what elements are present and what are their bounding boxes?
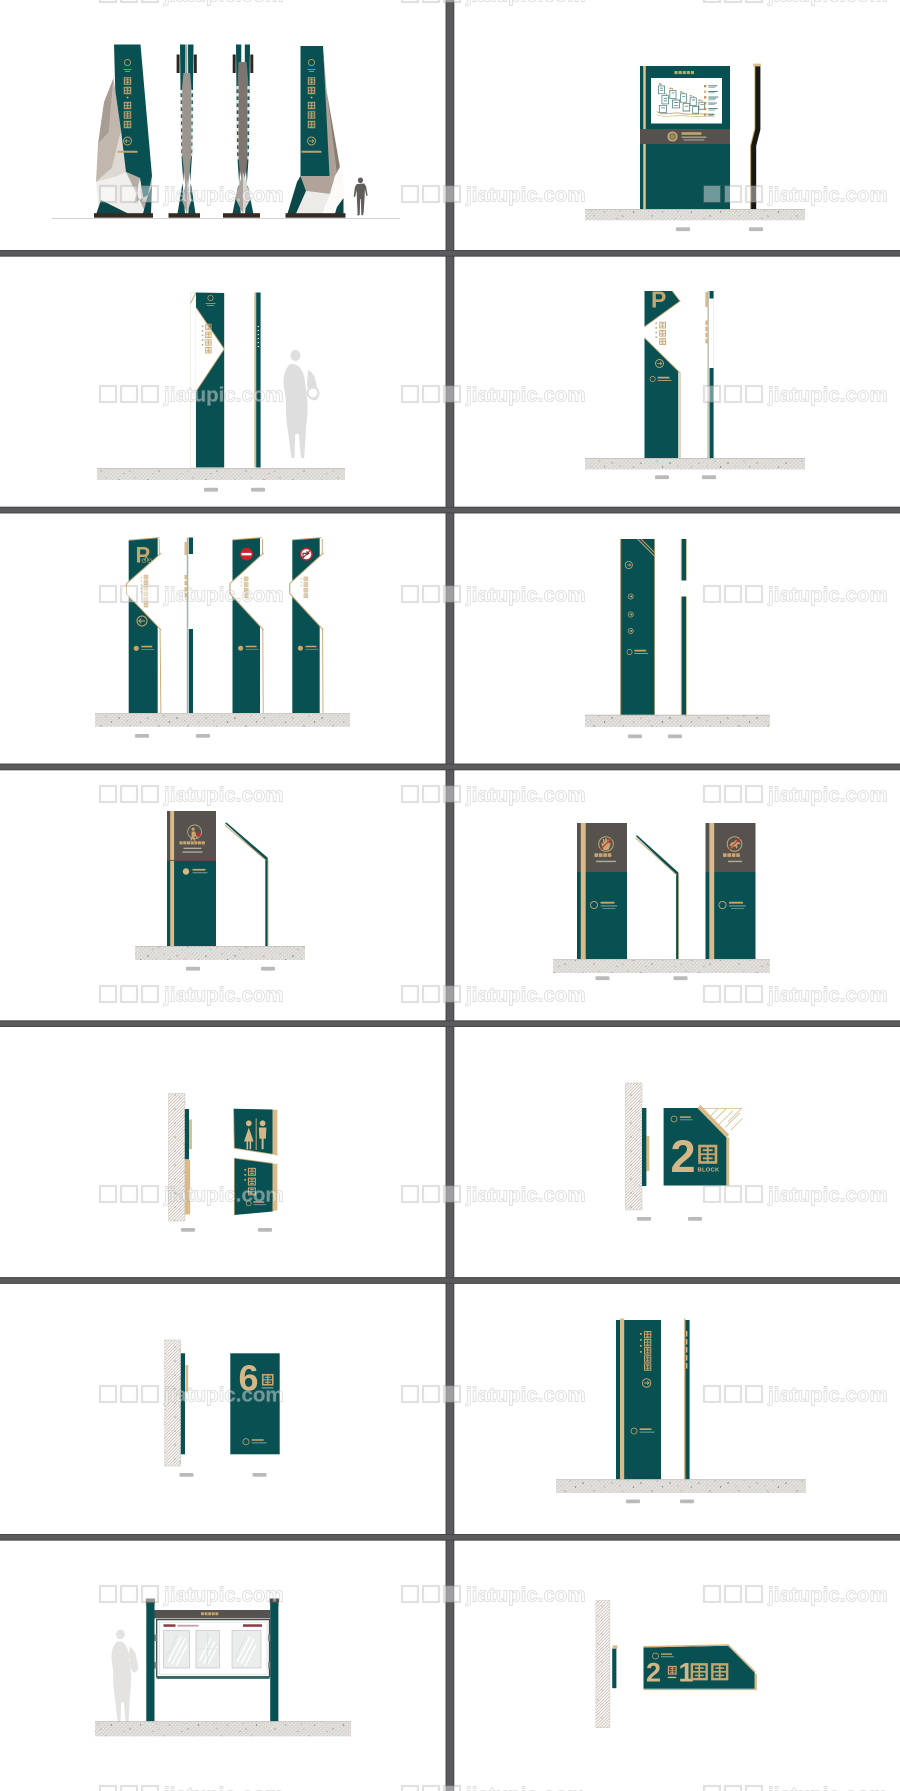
svg-text:BLOCK: BLOCK [698, 1167, 720, 1173]
svg-text:P: P [651, 287, 666, 313]
svg-text:P: P [136, 543, 151, 568]
svg-text:2: 2 [671, 1131, 696, 1182]
svg-text:2: 2 [646, 1658, 661, 1688]
